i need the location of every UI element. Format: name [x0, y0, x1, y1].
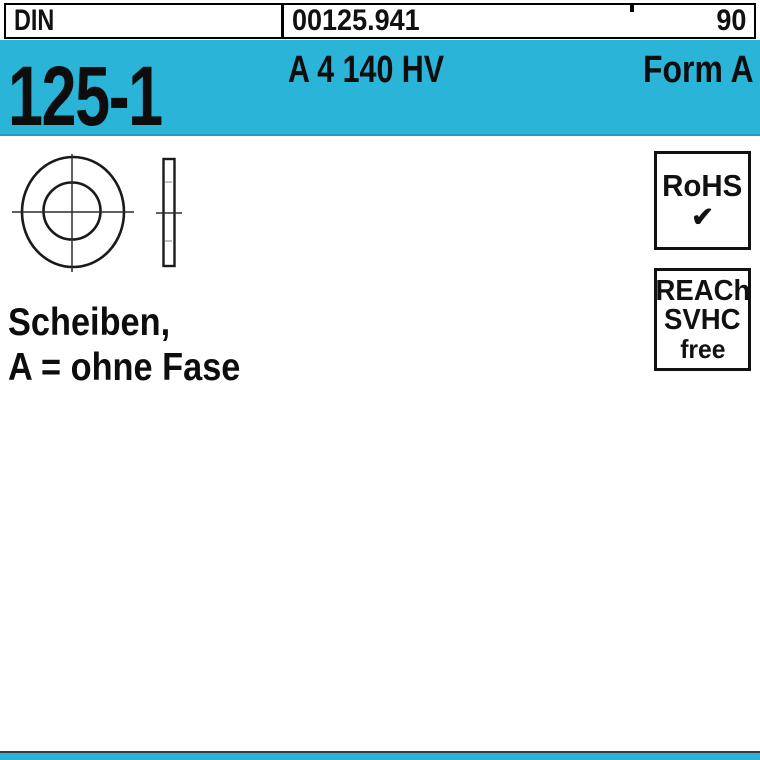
description-line-1: Scheiben, — [8, 300, 240, 345]
catalog-product-image: DIN 00125.941 90 125-1 A 4 140 HV Form A… — [0, 0, 760, 760]
rohs-badge: RoHS ✔ — [654, 151, 751, 250]
material-spec: A 4 140 HV — [288, 51, 444, 89]
footer-accent-bar — [0, 751, 760, 760]
reach-line-2: SVHC — [664, 306, 741, 336]
checkmark-icon: ✔ — [691, 204, 714, 231]
description-line-2: A = ohne Fase — [8, 345, 240, 390]
title-banner: 125-1 A 4 140 HV Form A — [0, 40, 760, 136]
header-divider — [281, 5, 284, 37]
header-tick-mark — [630, 5, 634, 12]
din-label: DIN — [14, 5, 54, 37]
washer-front-view — [12, 154, 134, 272]
article-number: 00125.941 — [292, 5, 420, 37]
reach-badge: REACh SVHC free — [654, 268, 751, 371]
rohs-label: RoHS — [662, 170, 742, 203]
standard-number: 125-1 — [8, 54, 162, 138]
page-number: 90 — [716, 5, 746, 37]
reach-line-3: free — [680, 336, 725, 363]
form-label: Form A — [643, 51, 754, 89]
product-description: Scheiben, A = ohne Fase — [8, 300, 272, 390]
washer-technical-drawing — [0, 145, 200, 285]
reach-line-1: REACh — [655, 277, 750, 307]
washer-side-view — [156, 159, 182, 266]
header-bar: DIN 00125.941 90 — [4, 3, 756, 39]
